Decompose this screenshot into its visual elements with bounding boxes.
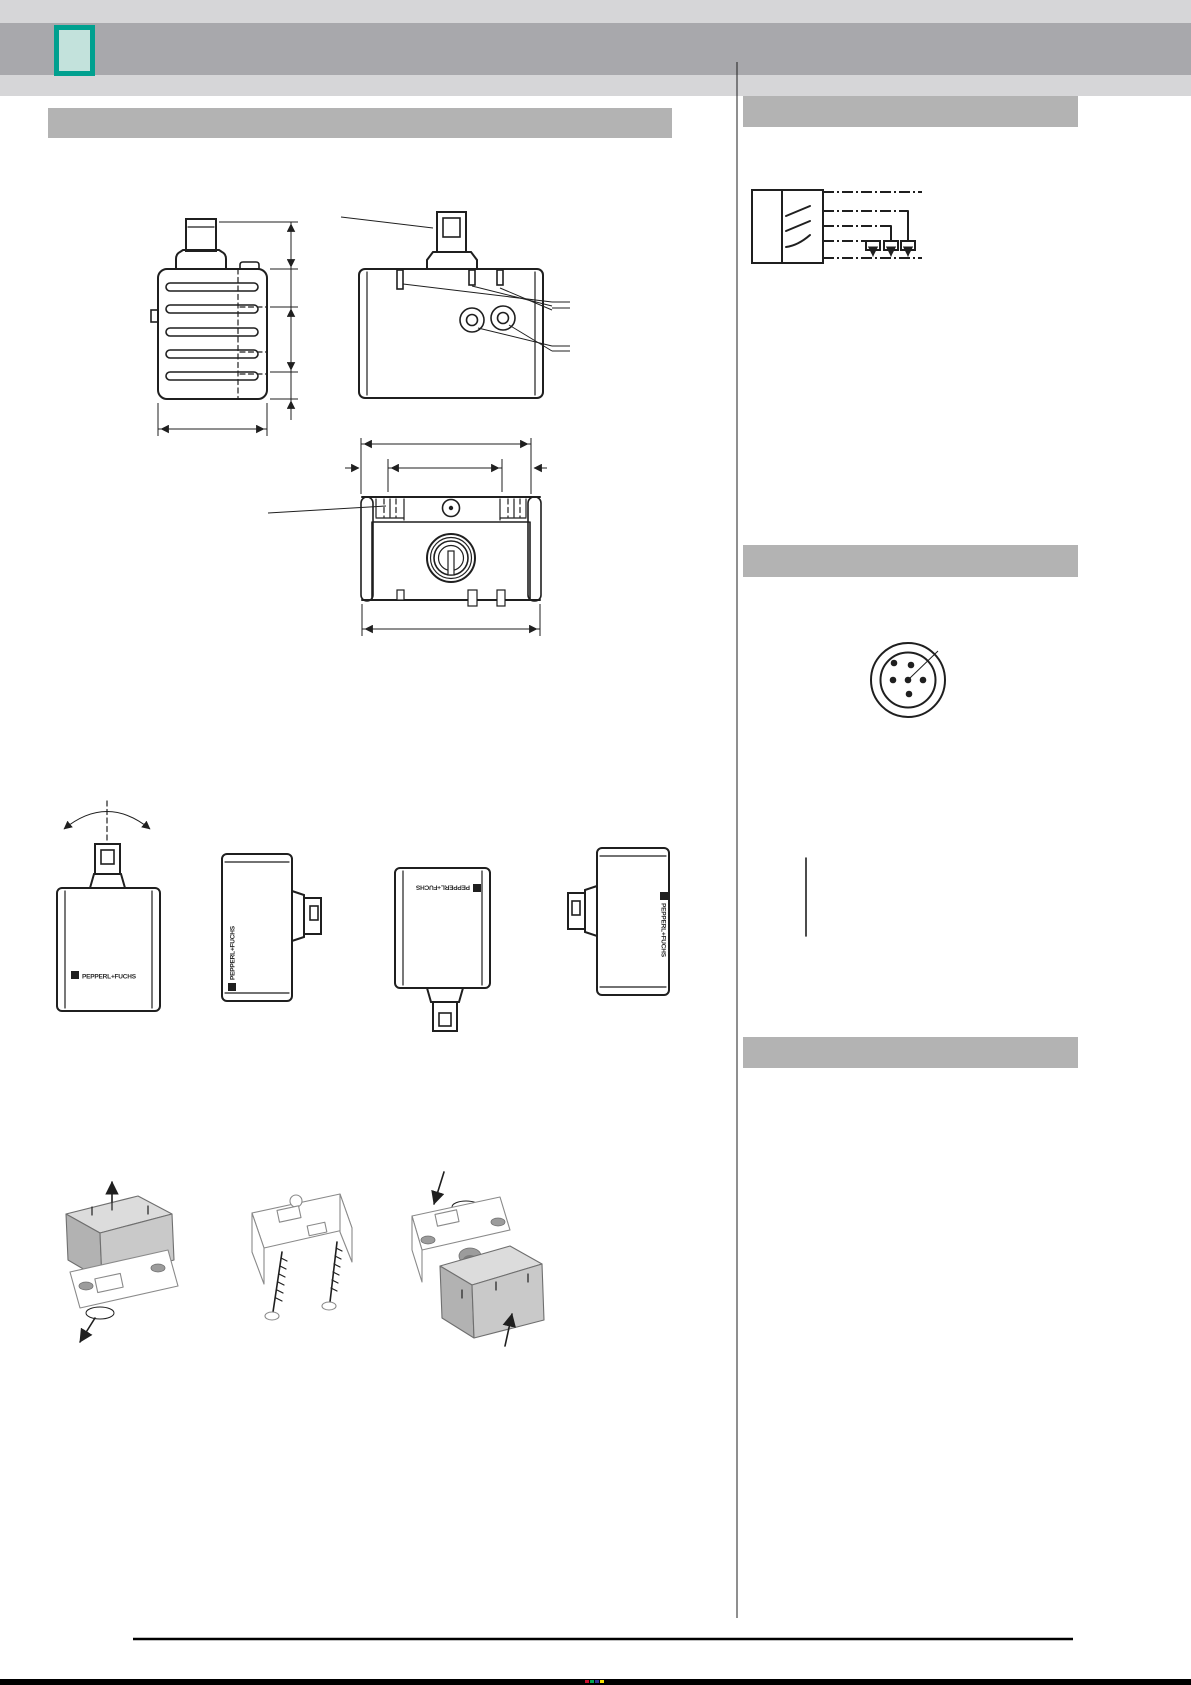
brand-logo-mark bbox=[473, 884, 481, 892]
rotate-symbol bbox=[86, 1307, 114, 1319]
switch-contact-2 bbox=[786, 221, 810, 231]
print-mark-red bbox=[585, 1680, 589, 1683]
mounting-step-bracket-screws bbox=[252, 1194, 352, 1320]
datasheet-page: PEPPERL+FUCHS PEPPERL+FUCHS bbox=[0, 0, 1191, 1685]
brand-logo-mark bbox=[71, 971, 79, 979]
brand-logo-label: PEPPERL+FUCHS bbox=[660, 903, 667, 958]
mounting-figures bbox=[66, 1172, 544, 1346]
line-art-layer: PEPPERL+FUCHS PEPPERL+FUCHS bbox=[0, 0, 1191, 1685]
print-mark-green bbox=[590, 1680, 594, 1683]
top-view-drawing bbox=[268, 438, 547, 636]
device-connector-right: PEPPERL+FUCHS bbox=[222, 854, 321, 1001]
device-connector-down: PEPPERL+FUCHS bbox=[395, 868, 490, 1031]
pin bbox=[891, 660, 898, 667]
pin bbox=[920, 677, 927, 684]
brand-logo-mark bbox=[228, 983, 236, 991]
device-connector-up: PEPPERL+FUCHS bbox=[57, 801, 160, 1011]
brand-logo-label: PEPPERL+FUCHS bbox=[230, 925, 237, 980]
orientation-figures: PEPPERL+FUCHS PEPPERL+FUCHS bbox=[57, 801, 669, 1031]
load-symbol-1 bbox=[866, 241, 880, 250]
print-mark-yellow bbox=[600, 1680, 604, 1683]
load-symbol-2 bbox=[884, 241, 898, 250]
connector-leader-line bbox=[341, 217, 433, 228]
mounting-step-attach bbox=[412, 1172, 544, 1346]
connector-pinout-diagram bbox=[871, 643, 945, 717]
pin bbox=[908, 662, 915, 669]
mounting-step-remove bbox=[66, 1182, 178, 1342]
load-symbol-3 bbox=[901, 241, 915, 250]
switch-contact-1 bbox=[786, 206, 810, 216]
electrical-connection-diagram bbox=[752, 190, 922, 263]
print-mark-blue bbox=[595, 1680, 599, 1683]
brand-logo-mark bbox=[660, 892, 668, 900]
device-connector-left: PEPPERL+FUCHS bbox=[568, 848, 669, 995]
pin bbox=[906, 691, 913, 698]
side-view-drawing bbox=[151, 219, 298, 436]
flange-leader-line bbox=[268, 506, 386, 513]
front-view-drawing bbox=[341, 212, 570, 398]
brand-logo-label: PEPPERL+FUCHS bbox=[415, 884, 470, 891]
pin bbox=[890, 677, 897, 684]
switch-contact-3 bbox=[786, 235, 810, 247]
brand-logo-label: PEPPERL+FUCHS bbox=[82, 974, 137, 981]
